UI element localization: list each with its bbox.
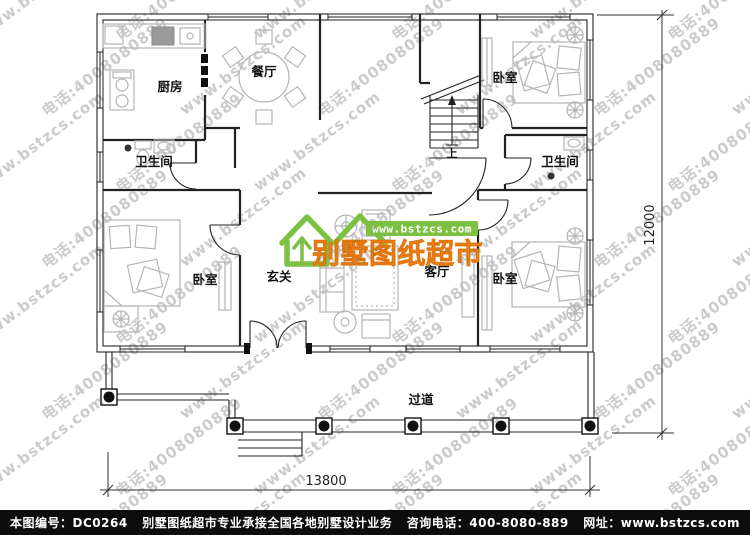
dining-label: 餐厅	[250, 64, 277, 79]
footer-bar: 本图编号：DC0264 别墅图纸超市专业承接全国各地别墅设计业务 咨询电话：40…	[0, 510, 750, 535]
exterior-walls	[97, 14, 593, 352]
porch-columns	[101, 389, 598, 434]
entry-label: 玄关	[266, 269, 292, 284]
bedroom-top-right-label: 卧室	[492, 70, 518, 85]
floor-plan-svg: 上	[0, 0, 750, 510]
footer-serial: 本图编号：DC0264	[10, 514, 128, 531]
room-labels: 厨房 餐厅 卧室 卫生间 卫生间 玄关 卧室 客厅 卧室 过道	[135, 64, 579, 407]
entry-door-jambs	[201, 54, 312, 354]
dimension-right: 12000	[597, 10, 674, 440]
stairs: 上	[421, 75, 484, 160]
bedroom-bottom-right-label: 卧室	[492, 271, 518, 286]
site-logo: www.bstzcs.com 别墅图纸超市	[282, 216, 483, 270]
logo-url-text: www.bstzcs.com	[372, 223, 472, 236]
bath-right-label: 卫生间	[541, 154, 579, 169]
bath-left-label: 卫生间	[135, 154, 173, 169]
footer-phone: 咨询电话：400-8080-889	[407, 514, 569, 531]
corridor-label: 过道	[408, 392, 434, 407]
kitchen-label: 厨房	[157, 79, 182, 94]
dimension-width-label: 13800	[305, 474, 346, 489]
logo-brand-text: 别墅图纸超市	[312, 237, 483, 270]
stairs-up-label: 上	[447, 146, 458, 160]
windows	[96, 13, 594, 353]
footer-slogan: 别墅图纸超市专业承接全国各地别墅设计业务	[142, 514, 392, 531]
footer-site: 网址：www.bstzcs.com	[583, 514, 740, 531]
dimension-bottom: 13800	[100, 452, 600, 497]
porch	[101, 352, 598, 456]
dimension-height-label: 12000	[643, 204, 658, 245]
bedroom-bottom-left-label: 卧室	[192, 272, 218, 287]
logo-arrow-up-icon	[294, 238, 310, 260]
blueprint-page: 上	[0, 0, 750, 535]
